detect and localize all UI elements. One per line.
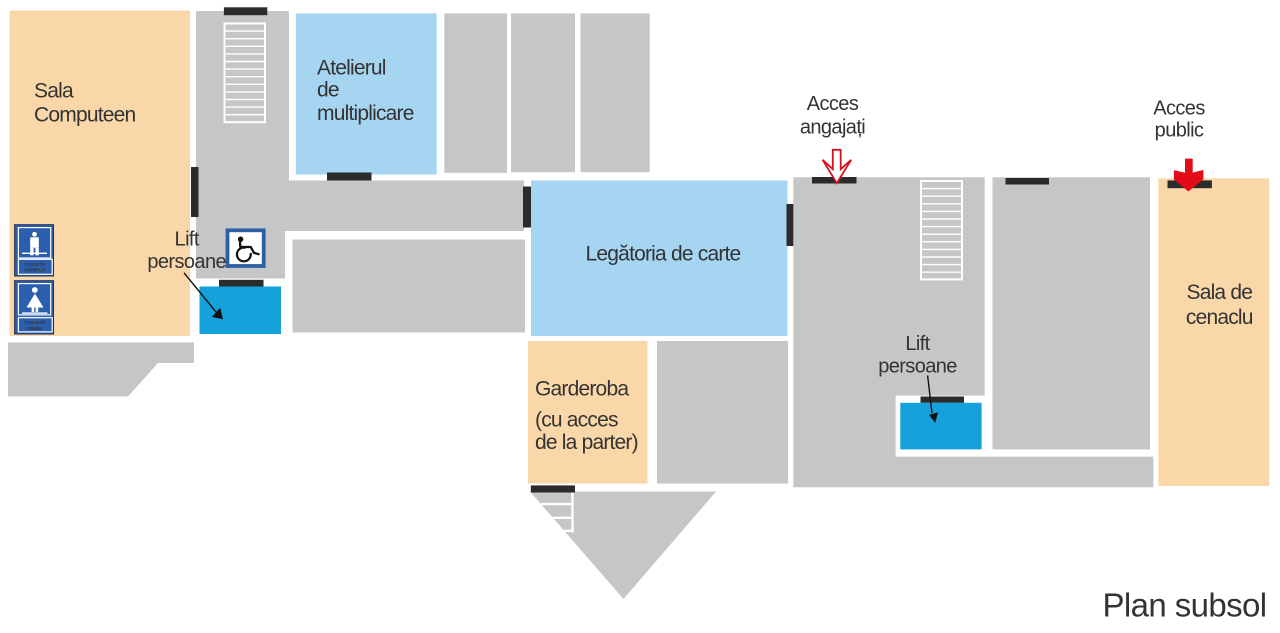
svg-text:de la parter): de la parter) [535,431,638,454]
svg-text:persoane: persoane [147,251,226,273]
svg-text:Acces: Acces [807,93,859,115]
svg-text:TOALETĂ: TOALETĂ [24,261,46,267]
svg-text:Lift: Lift [175,228,200,250]
svg-text:FEMEI: FEMEI [28,326,42,331]
svg-text:angajați: angajați [800,116,865,138]
svg-text:Sala: Sala [34,79,74,102]
svg-text:Lift: Lift [905,333,930,355]
svg-text:Plan subsol: Plan subsol [1103,587,1267,624]
svg-text:(cu acces: (cu acces [535,409,618,432]
svg-text:multiplicare: multiplicare [317,102,414,125]
svg-text:public: public [1155,120,1204,142]
svg-text:BĂRBAȚI: BĂRBAȚI [24,267,45,273]
svg-text:persoane: persoane [878,356,957,378]
svg-text:de: de [317,79,339,102]
svg-text:TOALETĂ: TOALETĂ [24,319,46,325]
svg-text:Acces: Acces [1153,97,1205,119]
svg-text:cenaclu: cenaclu [1186,306,1253,329]
svg-text:Garderoba: Garderoba [535,378,629,401]
svg-text:Atelierul: Atelierul [317,57,386,80]
svg-text:Sala de: Sala de [1186,281,1252,304]
svg-text:Computeen: Computeen [34,104,135,127]
svg-text:Legătoria de carte: Legătoria de carte [586,243,741,266]
